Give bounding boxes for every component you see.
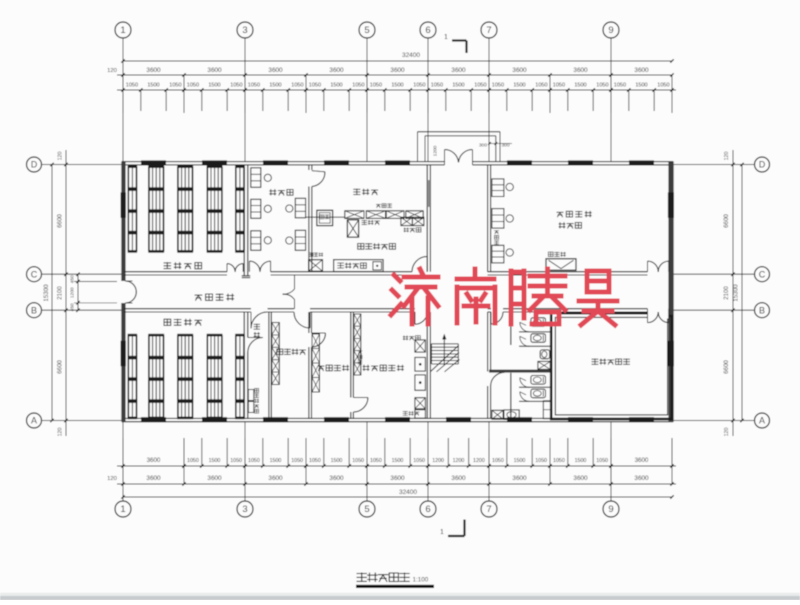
svg-text:1050: 1050 xyxy=(187,83,199,89)
svg-text:1500: 1500 xyxy=(392,458,404,464)
svg-text:3600: 3600 xyxy=(512,475,527,482)
svg-text:1500: 1500 xyxy=(147,83,159,89)
svg-text:1: 1 xyxy=(444,34,448,41)
svg-text:1050: 1050 xyxy=(248,83,260,89)
svg-text:B: B xyxy=(759,305,765,315)
svg-text:1050: 1050 xyxy=(657,83,669,89)
svg-text:1050: 1050 xyxy=(187,458,199,464)
svg-text:1050: 1050 xyxy=(413,458,425,464)
svg-text:1500: 1500 xyxy=(513,83,525,89)
svg-text:6: 6 xyxy=(425,25,430,36)
svg-text:3600: 3600 xyxy=(634,67,649,74)
svg-text:3600: 3600 xyxy=(390,475,405,482)
svg-text:1500: 1500 xyxy=(452,83,464,89)
svg-text:3600: 3600 xyxy=(635,457,649,464)
svg-text:1050: 1050 xyxy=(352,83,364,89)
svg-text:9: 9 xyxy=(608,504,613,515)
svg-text:3600: 3600 xyxy=(634,475,649,482)
svg-text:120: 120 xyxy=(724,428,730,437)
svg-text:2100: 2100 xyxy=(724,286,730,300)
svg-text:120: 120 xyxy=(724,152,730,161)
svg-text:1500: 1500 xyxy=(330,83,342,89)
svg-text:450: 450 xyxy=(70,275,76,283)
svg-text:3600: 3600 xyxy=(268,475,283,482)
svg-text:3600: 3600 xyxy=(146,475,161,482)
svg-text:1200: 1200 xyxy=(473,458,485,464)
svg-text:7: 7 xyxy=(486,25,491,36)
svg-text:1050: 1050 xyxy=(291,458,303,464)
svg-text:1: 1 xyxy=(440,529,444,536)
svg-text:120: 120 xyxy=(107,68,117,74)
svg-text:1050: 1050 xyxy=(309,83,321,89)
svg-text:7: 7 xyxy=(486,504,491,515)
svg-text:1050: 1050 xyxy=(370,83,382,89)
svg-text:120: 120 xyxy=(58,428,64,437)
svg-text:3: 3 xyxy=(242,25,247,36)
svg-text:3600: 3600 xyxy=(573,67,588,74)
svg-text:3600: 3600 xyxy=(329,67,344,74)
svg-text:32400: 32400 xyxy=(402,52,420,59)
svg-text:1: 1 xyxy=(120,504,125,515)
svg-text:3: 3 xyxy=(242,504,247,515)
svg-text:1050: 1050 xyxy=(230,458,242,464)
svg-text:1: 1 xyxy=(120,25,125,36)
svg-text:1050: 1050 xyxy=(370,458,382,464)
svg-text:1050: 1050 xyxy=(352,458,364,464)
svg-text:1050: 1050 xyxy=(474,83,486,89)
svg-text:1:100: 1:100 xyxy=(413,577,429,584)
svg-text:6600: 6600 xyxy=(57,360,64,374)
svg-text:1050: 1050 xyxy=(596,458,608,464)
svg-text:3600: 3600 xyxy=(451,67,466,74)
svg-text:15300: 15300 xyxy=(733,284,740,302)
svg-text:3600: 3600 xyxy=(390,67,405,74)
svg-text:1200: 1200 xyxy=(453,458,465,464)
svg-text:1500: 1500 xyxy=(270,458,282,464)
svg-text:32400: 32400 xyxy=(399,489,417,496)
svg-text:9: 9 xyxy=(608,25,613,36)
svg-text:6600: 6600 xyxy=(57,214,64,228)
svg-text:1050: 1050 xyxy=(248,458,260,464)
svg-text:A: A xyxy=(31,416,37,426)
svg-text:5: 5 xyxy=(364,25,369,36)
svg-text:1500: 1500 xyxy=(391,83,403,89)
svg-text:6600: 6600 xyxy=(723,360,730,374)
svg-text:1050: 1050 xyxy=(309,458,321,464)
svg-text:1500: 1500 xyxy=(574,83,586,89)
svg-text:1050: 1050 xyxy=(169,83,181,89)
svg-text:1200: 1200 xyxy=(433,145,439,156)
svg-text:1050: 1050 xyxy=(492,83,504,89)
svg-text:2100: 2100 xyxy=(58,286,64,300)
svg-text:1500: 1500 xyxy=(208,83,220,89)
svg-text:3600: 3600 xyxy=(146,67,161,74)
svg-text:D: D xyxy=(759,160,766,170)
svg-text:1050: 1050 xyxy=(291,83,303,89)
svg-text:A: A xyxy=(759,416,765,426)
svg-text:1500: 1500 xyxy=(209,458,221,464)
svg-text:3600: 3600 xyxy=(451,475,466,482)
svg-text:1050: 1050 xyxy=(553,458,565,464)
svg-text:120: 120 xyxy=(107,476,117,482)
svg-text:1050: 1050 xyxy=(535,458,547,464)
svg-text:B: B xyxy=(31,305,37,315)
svg-text:15300: 15300 xyxy=(43,284,50,302)
svg-text:D: D xyxy=(31,160,38,170)
svg-text:1050: 1050 xyxy=(431,83,443,89)
svg-text:6: 6 xyxy=(425,504,430,515)
svg-text:1050: 1050 xyxy=(413,83,425,89)
svg-text:1500: 1500 xyxy=(269,83,281,89)
svg-text:5: 5 xyxy=(364,504,369,515)
svg-text:1500: 1500 xyxy=(575,458,587,464)
svg-text:3600: 3600 xyxy=(329,475,344,482)
svg-text:3600: 3600 xyxy=(268,67,283,74)
svg-text:3600: 3600 xyxy=(147,457,161,464)
svg-text:3600: 3600 xyxy=(207,67,222,74)
svg-text:1050: 1050 xyxy=(596,83,608,89)
svg-text:300: 300 xyxy=(479,143,487,149)
svg-text:1050: 1050 xyxy=(535,83,547,89)
svg-text:1050: 1050 xyxy=(553,83,565,89)
svg-text:6600: 6600 xyxy=(723,214,730,228)
svg-text:1500: 1500 xyxy=(635,83,647,89)
svg-text:1050: 1050 xyxy=(126,83,138,89)
svg-text:120: 120 xyxy=(58,152,64,161)
svg-text:1200: 1200 xyxy=(70,287,76,298)
svg-text:1200: 1200 xyxy=(432,458,444,464)
svg-text:C: C xyxy=(759,269,766,279)
svg-text:3600: 3600 xyxy=(512,67,527,74)
svg-text:1050: 1050 xyxy=(492,458,504,464)
svg-text:1500: 1500 xyxy=(514,458,526,464)
svg-text:1050: 1050 xyxy=(614,83,626,89)
svg-text:1050: 1050 xyxy=(230,83,242,89)
svg-text:450: 450 xyxy=(70,303,76,311)
svg-text:C: C xyxy=(31,269,38,279)
svg-text:3600: 3600 xyxy=(207,475,222,482)
svg-text:3600: 3600 xyxy=(573,475,588,482)
svg-text:1500: 1500 xyxy=(331,458,343,464)
